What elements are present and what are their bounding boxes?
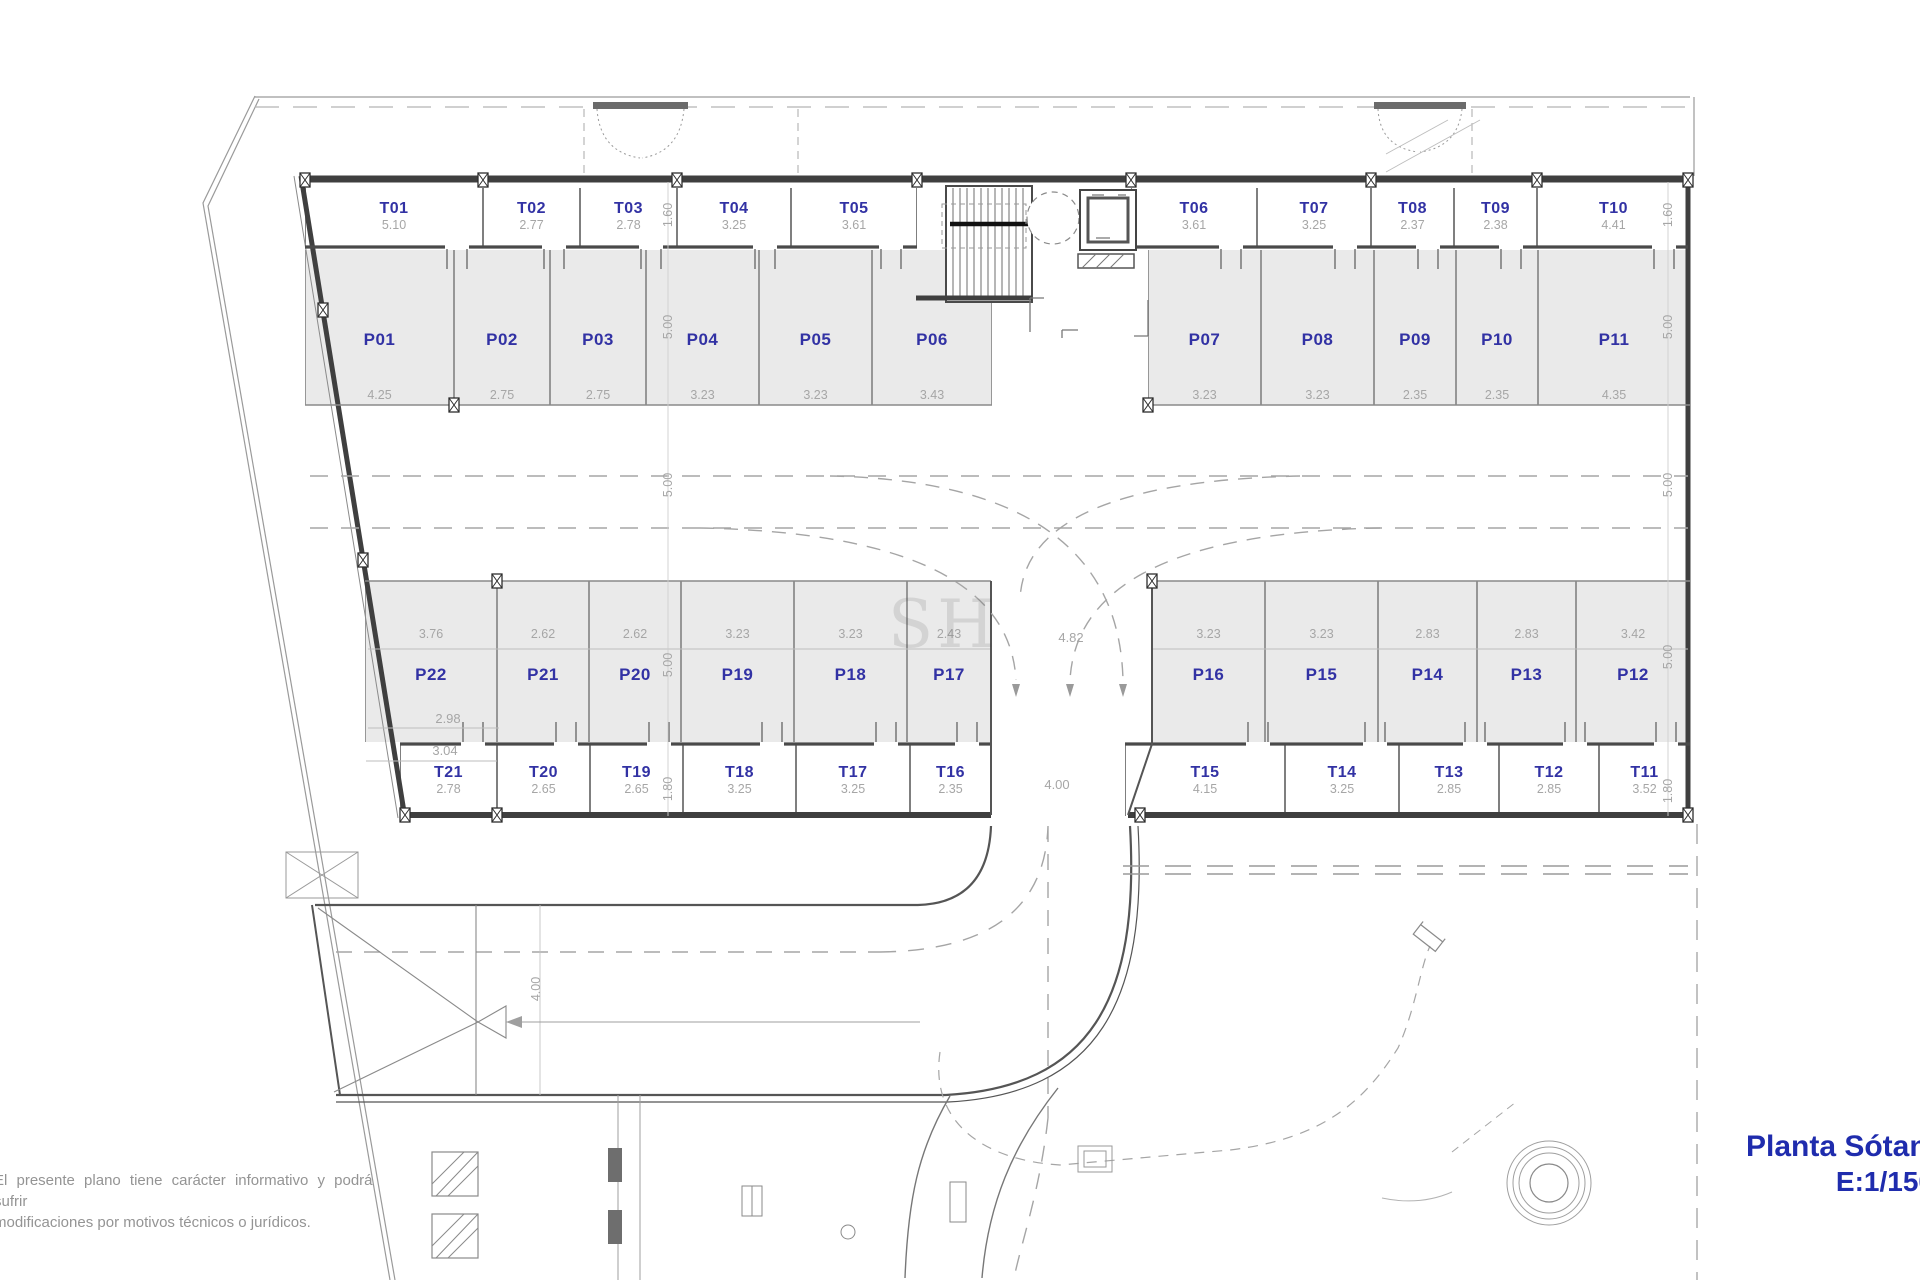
dim-label: 5.00 — [1661, 305, 1675, 349]
dim-label: 5.00 — [1661, 463, 1675, 507]
disclaimer-note: El presente plano tiene carácter informa… — [0, 1170, 384, 1233]
floor-plan-canvas: T015.10 T022.77 T032.78 T043.25 T053.61 … — [0, 0, 1920, 1280]
gate-icon — [593, 102, 688, 109]
plan-scale: E:1/150 — [1746, 1166, 1920, 1198]
room-label: T01 — [306, 200, 482, 218]
dim-label: 4.00 — [1007, 777, 1107, 792]
storage-room: T143.25 — [1285, 744, 1399, 816]
storage-room: T092.38 — [1454, 188, 1537, 247]
dim-label: 1.80 — [661, 767, 675, 811]
parking-stall: P212.62 — [497, 581, 589, 742]
storage-room: T015.10 — [305, 188, 483, 247]
storage-room: T113.52 — [1599, 744, 1690, 816]
storage-room: T053.61 — [791, 188, 917, 247]
dim-label: 5.00 — [661, 463, 675, 507]
parking-stall: P053.23 — [759, 250, 872, 405]
parking-stall: P163.23 — [1152, 581, 1265, 742]
gate-icon — [1374, 102, 1466, 109]
plan-title: Planta Sótano — [1746, 1130, 1920, 1164]
dim-label: 5.00 — [1661, 635, 1675, 679]
storage-room: T132.85 — [1399, 744, 1499, 816]
parking-stall: P092.35 — [1374, 250, 1456, 405]
parking-stall: P083.23 — [1261, 250, 1374, 405]
dim-label: 5.00 — [661, 305, 675, 349]
storage-room: T122.85 — [1499, 744, 1599, 816]
parking-stall: P193.23 — [681, 581, 794, 742]
storage-room: T183.25 — [683, 744, 796, 816]
parking-stall: P022.75 — [454, 250, 550, 405]
dim-label: 1.60 — [1661, 193, 1675, 237]
parking-stall: P102.35 — [1456, 250, 1538, 405]
dim-label: 1.80 — [1661, 769, 1675, 813]
parking-stall: P142.83 — [1378, 581, 1477, 742]
parking-stall: P014.25 — [305, 250, 454, 405]
storage-room: T063.61 — [1131, 188, 1257, 247]
storage-room: T073.25 — [1257, 188, 1371, 247]
dim-label: 3.04 — [395, 743, 495, 758]
storage-room: T154.15 — [1125, 744, 1285, 816]
dim-label: 2.98 — [398, 711, 498, 726]
dim-label: 5.00 — [661, 643, 675, 687]
bench-icon — [1413, 922, 1445, 952]
parking-stall: P032.75 — [550, 250, 646, 405]
parking-stall: P063.43 — [872, 250, 992, 405]
storage-room: T043.25 — [677, 188, 791, 247]
storage-room: T173.25 — [796, 744, 910, 816]
disclaimer-line2: modificaciones por motivos técnicos o ju… — [0, 1212, 384, 1233]
parking-stall: P153.23 — [1265, 581, 1378, 742]
disclaimer-line1: El presente plano tiene carácter informa… — [0, 1170, 384, 1212]
storage-room: T082.37 — [1371, 188, 1454, 247]
parking-stall: P132.83 — [1477, 581, 1576, 742]
watermark: SH — [888, 586, 999, 663]
dim-label: 4.82 — [1021, 630, 1121, 645]
title-block: Planta Sótano E:1/150 — [1746, 1130, 1920, 1198]
storage-room: T202.65 — [497, 744, 590, 816]
dim-label: 4.00 — [529, 967, 543, 1011]
parking-stall: P073.23 — [1148, 250, 1261, 405]
dim-label: 1.60 — [661, 193, 675, 237]
storage-room: T162.35 — [910, 744, 991, 816]
storage-room: T022.77 — [483, 188, 580, 247]
room-dim: 5.10 — [306, 218, 482, 232]
